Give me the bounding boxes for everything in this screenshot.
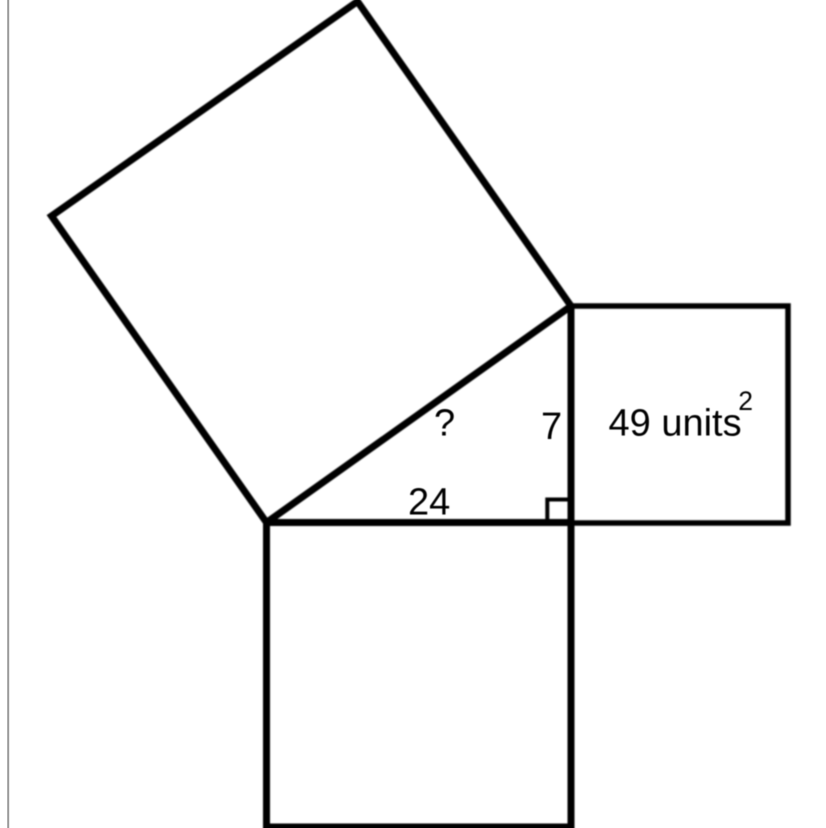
svg-text:?: ? [434, 403, 455, 445]
svg-text:2: 2 [738, 386, 753, 416]
svg-text:24: 24 [408, 482, 450, 524]
svg-text:7: 7 [541, 406, 562, 448]
svg-text:49 units: 49 units [609, 403, 742, 445]
